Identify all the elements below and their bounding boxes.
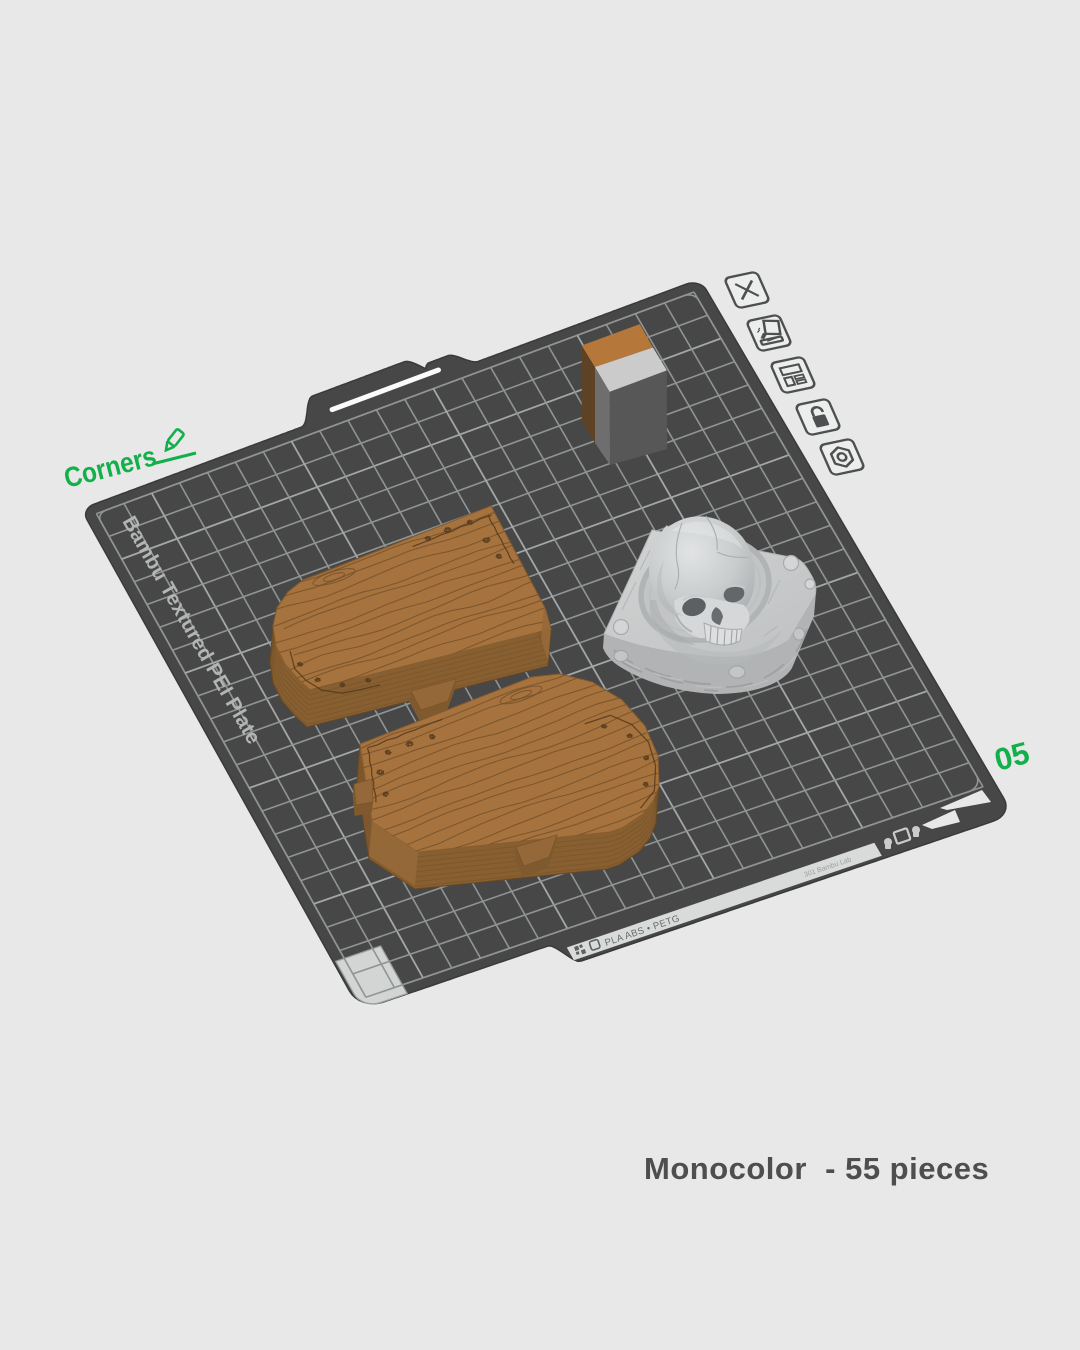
svg-text:Monocolor - 55 pieces: Monocolor - 55 pieces <box>644 1151 989 1186</box>
